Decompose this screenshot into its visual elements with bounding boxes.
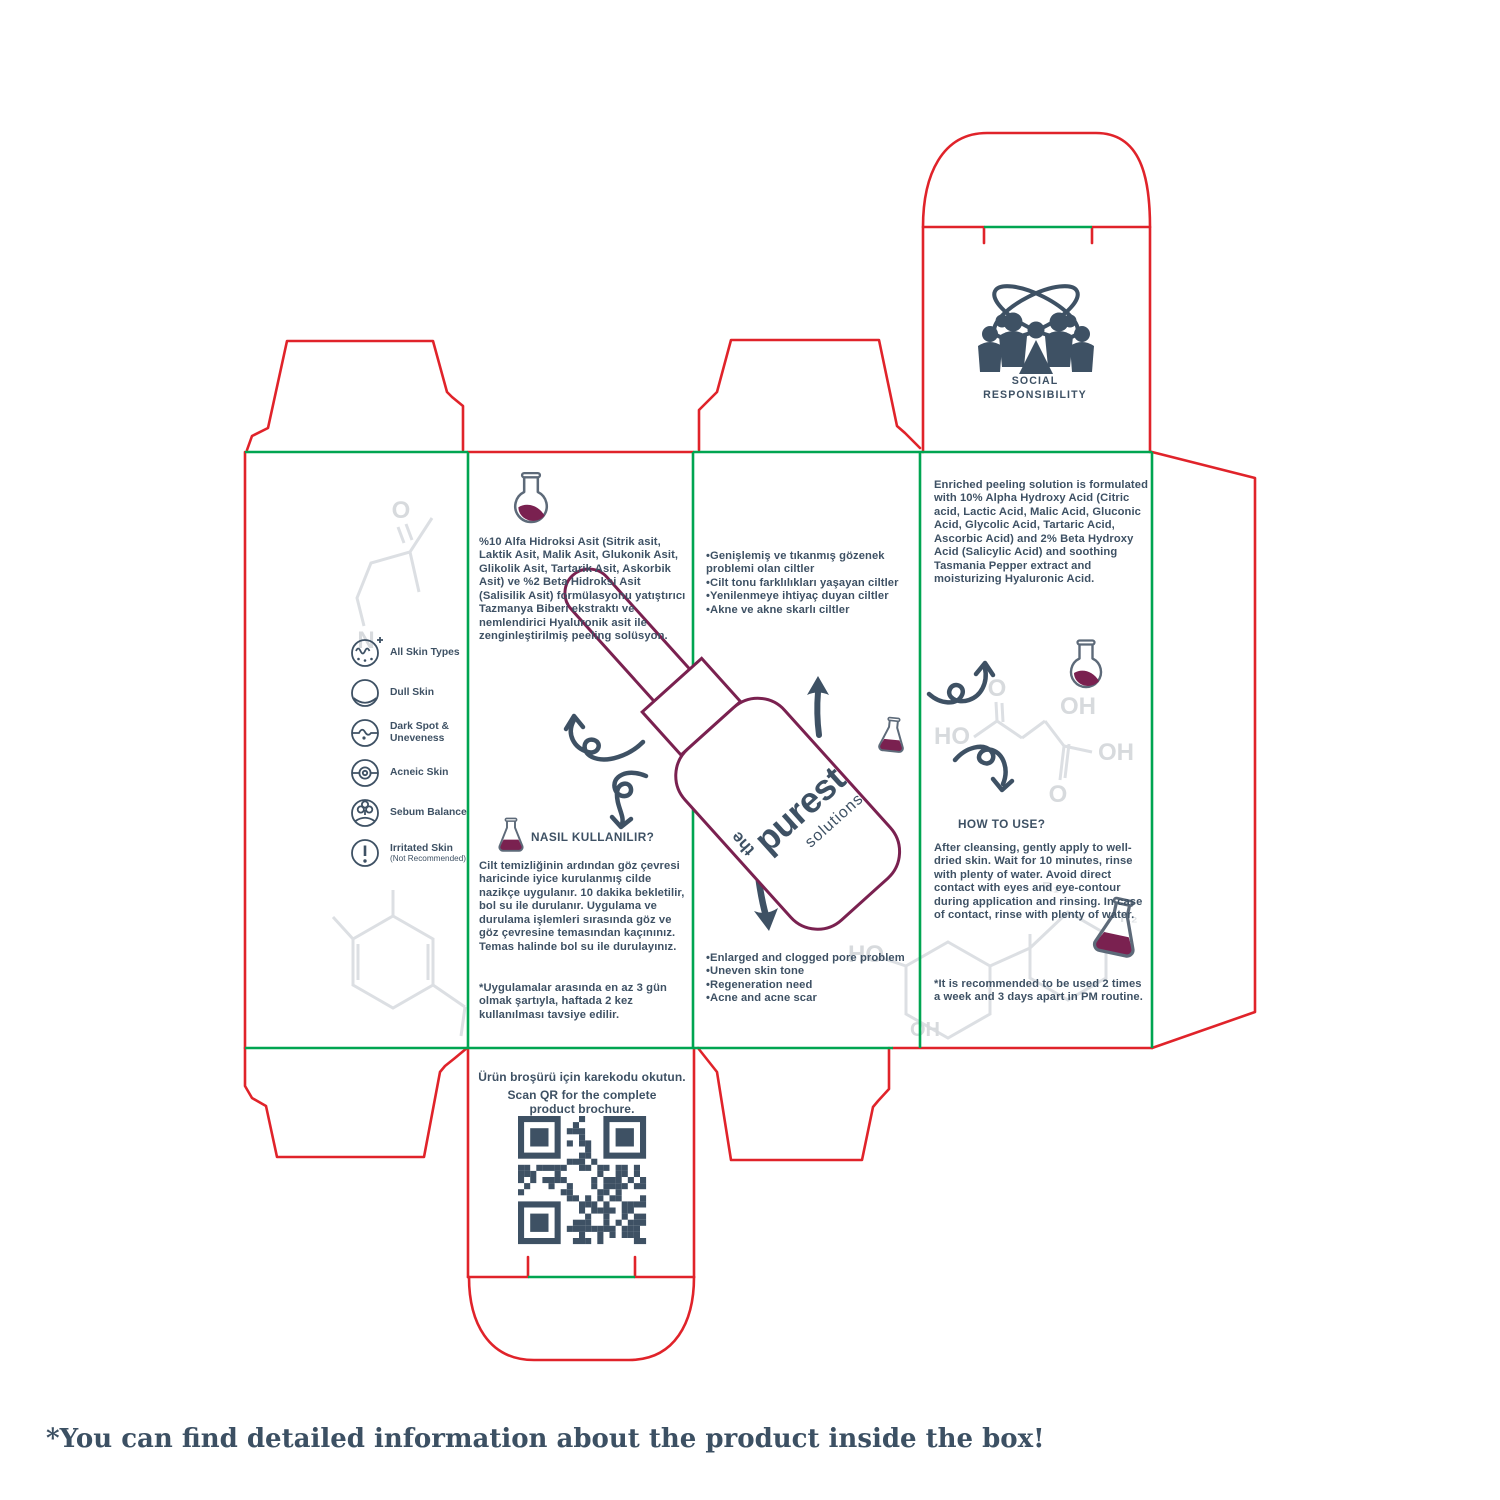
skin-type-acneic: Acneic Skin [347, 753, 477, 793]
skin-type-label: All Skin Types [390, 647, 460, 658]
english-how-to: After cleansing, gently apply to well-dr… [934, 842, 1148, 923]
turkish-how-to: Cilt temizliğinin ardından göz çevresi h… [479, 860, 688, 954]
dark-spot-icon [347, 716, 383, 750]
skin-type-irritated: Irritated Skin (Not Recommended) [347, 833, 477, 873]
sebum-balance-icon [347, 796, 383, 830]
skin-type-label: Dark Spot & Uneveness [390, 721, 449, 744]
all-skin-types-icon [347, 636, 383, 670]
round-flask-icon [515, 473, 547, 522]
nasil-kullanilir-title: NASIL KULLANILIR? [531, 830, 701, 844]
watermark-oh1: OH [1060, 693, 1096, 720]
skin-type-label: Acneic Skin [390, 767, 448, 778]
round-flask-icon [1071, 641, 1101, 688]
erlenmeyer-flask-icon [879, 717, 906, 753]
irritated-skin-icon [347, 836, 383, 870]
footer-caption: *You can find detailed information about… [46, 1424, 1146, 1454]
front-bullets-english: •Enlarged and clogged pore problem •Unev… [706, 952, 908, 1006]
dieline-canvas: O N HO O OH OH O HO OH R₁ R₂ [0, 0, 1500, 1500]
skin-type-note: (Not Recommended) [390, 854, 470, 863]
turkish-description: %10 Alfa Hidroksi Asit (Sitrik asit, Lak… [479, 536, 688, 644]
watermark-oh3: OH [910, 1019, 940, 1041]
watermark-o1: O [392, 497, 411, 524]
watermark-o3: O [1049, 781, 1068, 808]
watermark-o2: O [988, 675, 1007, 702]
qr-caption-turkish: Ürün broşürü için karekodu okutun. [470, 1070, 694, 1084]
skin-type-list: All Skin Types Dull Skin Dark Spot & Une… [347, 633, 477, 873]
social-label-line2: RESPONSIBILITY [920, 388, 1150, 402]
skin-type-label: Dull Skin [390, 687, 434, 698]
skin-type-dark-spot: Dark Spot & Uneveness [347, 713, 477, 753]
social-responsibility-icon [978, 276, 1094, 374]
english-description: Enriched peeling solution is formulated … [934, 479, 1148, 587]
erlenmeyer-flask-icon [499, 818, 522, 850]
watermark-oh2: OH [1098, 739, 1134, 766]
skin-type-label: Irritated Skin [390, 843, 453, 854]
watermark-ho1: HO [934, 723, 970, 750]
turkish-note: *Uygulamalar arasında en az 3 gün olmak … [479, 982, 688, 1022]
skin-type-all-skin: All Skin Types [347, 633, 477, 673]
social-label-line1: SOCIAL [920, 374, 1150, 388]
acneic-skin-icon [347, 756, 383, 790]
how-to-use-title: HOW TO USE? [958, 817, 1128, 831]
qr-code [518, 1116, 646, 1244]
qr-caption-english: Scan QR for the complete product brochur… [470, 1088, 694, 1117]
english-note: *It is recommended to be used 2 times a … [934, 978, 1148, 1005]
skin-type-label: Sebum Balance [390, 807, 467, 818]
social-responsibility-label: SOCIAL RESPONSIBILITY [920, 374, 1150, 403]
skin-type-sebum: Sebum Balance [347, 793, 477, 833]
dieline-art: O N HO O OH OH O HO OH R₁ R₂ [0, 0, 1500, 1500]
dull-skin-icon [347, 676, 383, 710]
skin-type-dull-skin: Dull Skin [347, 673, 477, 713]
front-bullets-turkish: •Genişlemiş ve tıkanmış gözenek problemi… [706, 550, 908, 617]
